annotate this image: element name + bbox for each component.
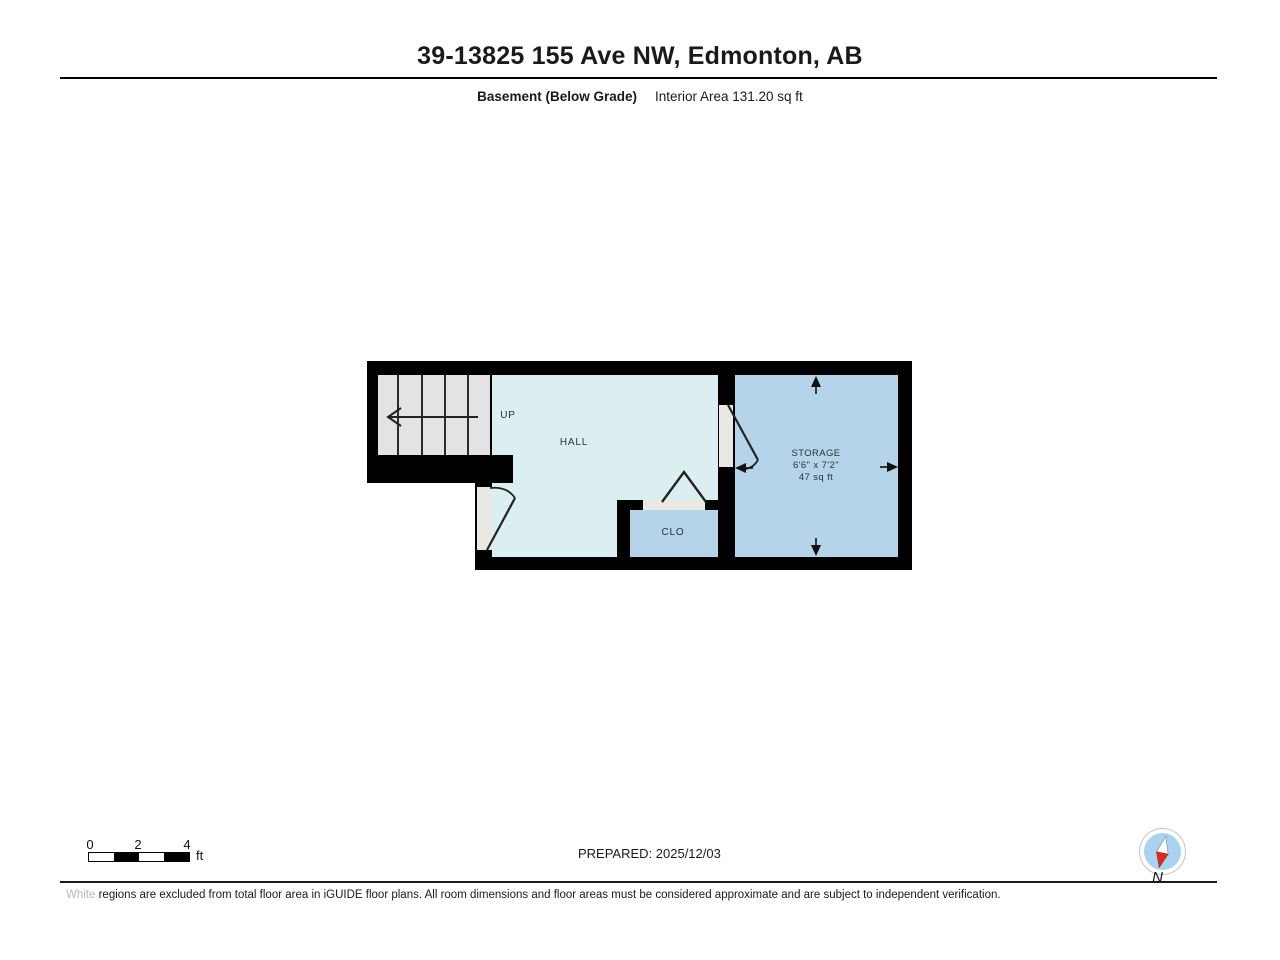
storage-area: 47 sq ft: [756, 472, 876, 484]
storage-dimensions: 6'6" x 7'2": [756, 460, 876, 472]
compass-north-label: N: [1139, 869, 1176, 886]
storage-door-swing: [728, 405, 758, 469]
hall-door-swing: [487, 488, 515, 550]
scale-segment: [164, 853, 189, 861]
stair-treads: [398, 375, 468, 455]
scale-tick-0: 0: [83, 837, 97, 852]
stair-up-arrow: [388, 408, 478, 426]
compass-needle-icon: [1139, 828, 1186, 875]
floor-plan: UP HALL CLO STORAGE 6'6" x 7'2" 47 sq ft: [367, 361, 912, 570]
scale-tick-4: 4: [180, 837, 194, 852]
storage-name: STORAGE: [756, 448, 876, 460]
disclaimer-white-word: White: [66, 889, 95, 901]
scale-segment: [89, 853, 114, 861]
storage-label: STORAGE 6'6" x 7'2" 47 sq ft: [756, 448, 876, 484]
scale-segment: [139, 853, 164, 861]
scale-bar: [88, 852, 190, 862]
header-divider: [60, 77, 1217, 79]
closet-label: CLO: [643, 527, 703, 538]
scale-segment: [114, 853, 139, 861]
scale-tick-2: 2: [131, 837, 145, 852]
page-title: 39-13825 155 Ave NW, Edmonton, AB: [0, 42, 1280, 71]
floor-label: Basement (Below Grade): [477, 89, 637, 104]
up-label: UP: [495, 410, 521, 421]
footer-divider: [60, 881, 1217, 883]
plan-subtitle: Basement (Below Grade)Interior Area 131.…: [0, 89, 1280, 104]
disclaimer-text: White regions are excluded from total fl…: [66, 889, 1001, 901]
closet-bifold-door: [662, 472, 706, 502]
hall-label: HALL: [544, 437, 604, 448]
disclaimer-rest: regions are excluded from total floor ar…: [95, 889, 1000, 901]
scale-unit-label: ft: [196, 848, 203, 863]
prepared-date: PREPARED: 2025/12/03: [578, 846, 721, 861]
interior-area-label: Interior Area 131.20 sq ft: [655, 89, 803, 104]
